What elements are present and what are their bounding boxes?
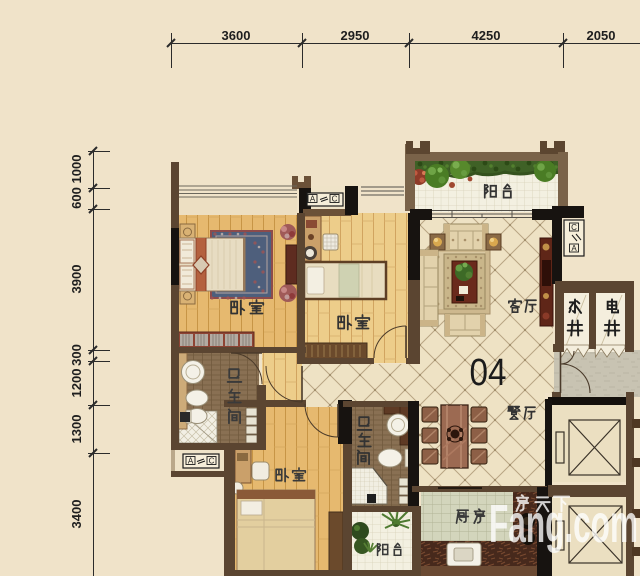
svg-text:04: 04	[470, 352, 507, 394]
svg-text:300: 300	[69, 344, 84, 366]
svg-text:3600: 3600	[222, 28, 251, 43]
svg-text:600: 600	[69, 187, 84, 209]
svg-text:4250: 4250	[472, 28, 501, 43]
svg-text:A: A	[188, 457, 194, 466]
svg-text:2050: 2050	[587, 28, 616, 43]
svg-text:1200: 1200	[69, 369, 84, 398]
svg-text:C: C	[571, 223, 577, 232]
svg-text:2950: 2950	[341, 28, 370, 43]
svg-text:1000: 1000	[69, 155, 84, 184]
svg-text:A: A	[571, 244, 577, 253]
svg-text:C: C	[209, 457, 215, 466]
svg-text:C: C	[332, 195, 338, 204]
svg-text:Fang.com: Fang.com	[489, 494, 638, 554]
svg-text:3900: 3900	[69, 265, 84, 294]
svg-text:A: A	[310, 195, 316, 204]
svg-text:1300: 1300	[69, 415, 84, 444]
svg-text:3400: 3400	[69, 500, 84, 529]
